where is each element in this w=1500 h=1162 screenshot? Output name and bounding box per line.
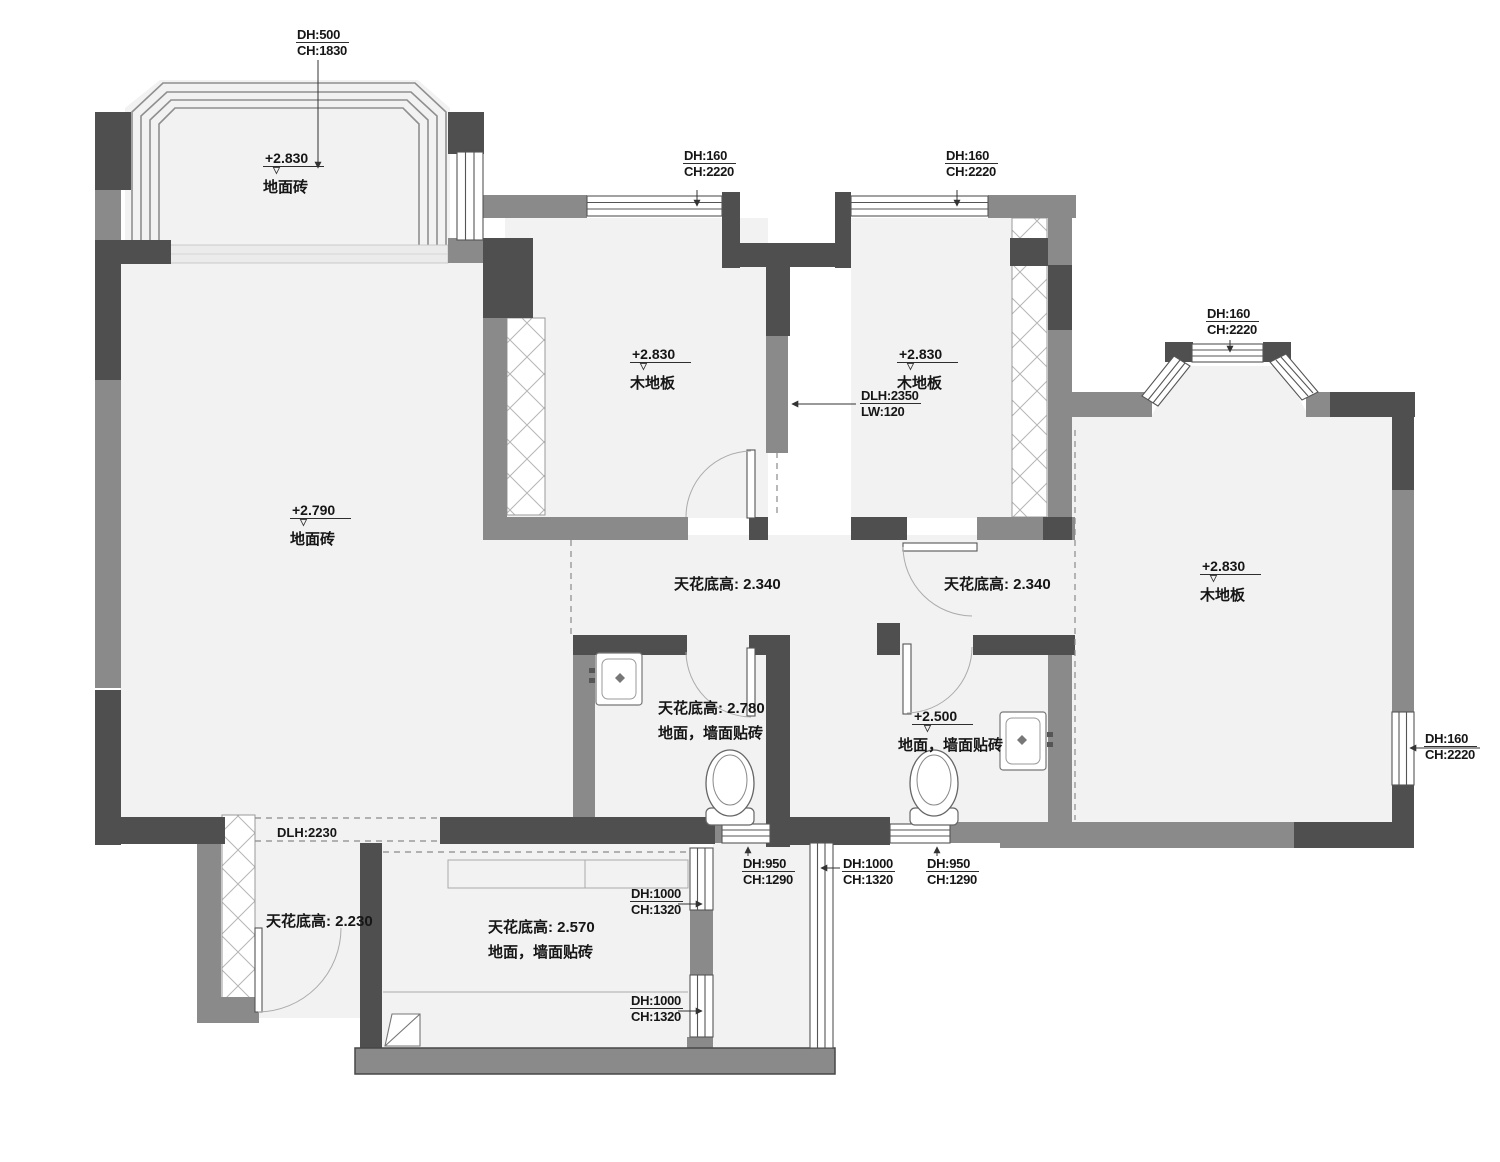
kitchen-label: 天花底高: 2.570 地面，墙面贴砖 bbox=[488, 916, 595, 962]
balcony-pillar-window bbox=[457, 152, 483, 240]
bath2-window bbox=[890, 824, 950, 843]
bottom-wall bbox=[355, 1048, 835, 1074]
toilet-icon bbox=[910, 750, 958, 825]
lightwell-window-mid-label: DH:1000 CH:1320 bbox=[842, 856, 895, 887]
kitchen-window-1-label: DH:1000 CH:1320 bbox=[630, 886, 683, 917]
bedroom-a-window-label: DH:160 CH:2220 bbox=[683, 148, 736, 179]
kitchen-window-2-label: DH:1000 CH:1320 bbox=[630, 993, 683, 1024]
bath2-door-leaf bbox=[903, 644, 911, 714]
bath2-label: +2.500 ▽ 地面，墙面贴砖 bbox=[898, 708, 1003, 755]
bath1-label: 天花底高: 2.780 地面，墙面贴砖 bbox=[658, 697, 765, 743]
kitchen-window-2 bbox=[690, 975, 713, 1037]
bedroom-b-top-window bbox=[851, 196, 988, 216]
toilet-icon bbox=[706, 750, 754, 825]
hall-ceiling-left-label: 天花底高: 2.340 bbox=[674, 573, 781, 594]
sink-icon bbox=[589, 653, 642, 705]
balcony-top-window-label: DH:500 CH:1830 bbox=[296, 27, 349, 58]
floor-plan: DH:500 CH:1830 +2.830 ▽ 地面砖 +2.790 ▽ 地面砖… bbox=[0, 0, 1500, 1162]
lightwell-window-left-label: DH:950 CH:1290 bbox=[742, 856, 795, 887]
master-bay-window-label: DH:160 CH:2220 bbox=[1206, 306, 1259, 337]
bedroom-b-window-label: DH:160 CH:2220 bbox=[945, 148, 998, 179]
lightwell-window bbox=[810, 843, 833, 1048]
master-level-label: +2.830 ▽ 木地板 bbox=[1200, 558, 1261, 605]
bay-window-top bbox=[1192, 344, 1263, 362]
lightwell-window-right-label: DH:950 CH:1290 bbox=[926, 856, 979, 887]
living-level-label: +2.790 ▽ 地面砖 bbox=[290, 502, 351, 549]
balcony-top-level-label: +2.830 ▽ 地面砖 bbox=[263, 150, 324, 197]
kitchen-window-1 bbox=[690, 848, 713, 910]
balcony-bottom-ceiling-label: 天花底高: 2.230 bbox=[266, 910, 373, 931]
bedroom-b-level-label: +2.830 ▽ 木地板 bbox=[897, 346, 958, 393]
master-side-window-label: DH:160 CH:2220 bbox=[1424, 731, 1477, 762]
hall-ceiling-right-label: 天花底高: 2.340 bbox=[944, 573, 1051, 594]
entry-opening-label: DLH:2230 bbox=[277, 825, 337, 840]
bedroom-b-door-leaf bbox=[903, 543, 977, 551]
balcony-door-leaf bbox=[255, 928, 262, 1012]
bedroom-a-top-window bbox=[587, 196, 722, 216]
bath1-window bbox=[722, 824, 770, 843]
bedroom-a-level-label: +2.830 ▽ 木地板 bbox=[630, 346, 691, 393]
sink-icon bbox=[1000, 712, 1053, 770]
bedroom-a-door-leaf bbox=[747, 450, 755, 518]
